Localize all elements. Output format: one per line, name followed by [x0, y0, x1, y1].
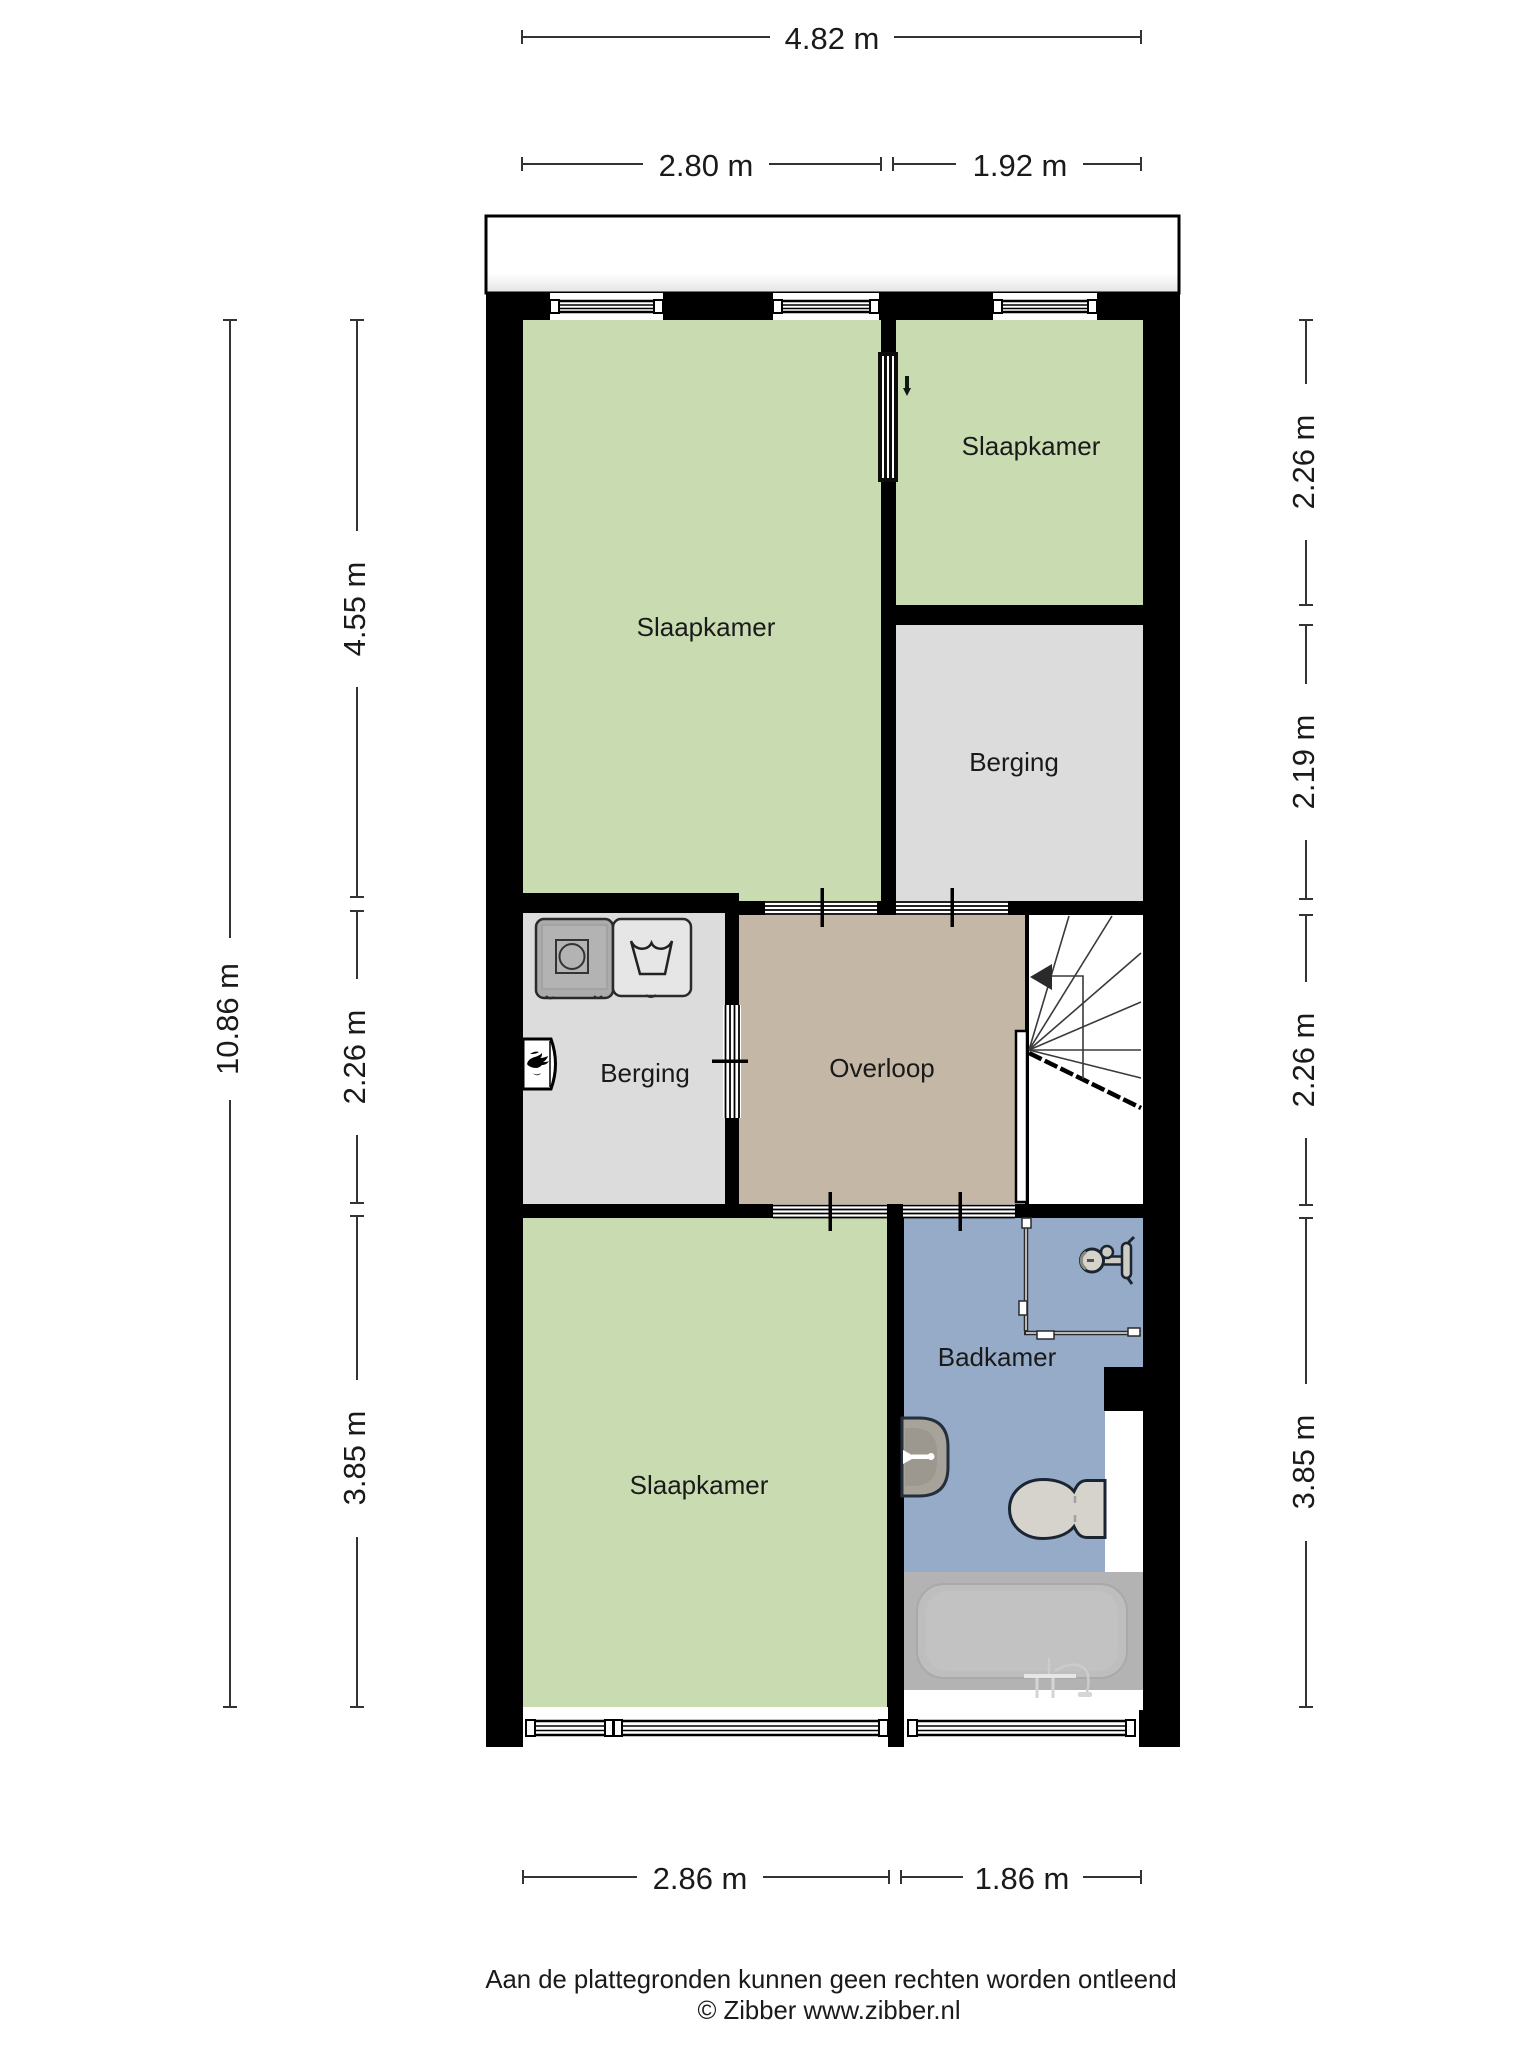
svg-text:Slaapkamer: Slaapkamer [637, 612, 776, 642]
svg-text:3.85 m: 3.85 m [1286, 1415, 1321, 1510]
svg-text:2.26 m: 2.26 m [337, 1010, 372, 1105]
svg-text:2.26 m: 2.26 m [1286, 1013, 1321, 1108]
svg-text:2.26 m: 2.26 m [1286, 415, 1321, 510]
svg-text:10.86 m: 10.86 m [210, 963, 245, 1075]
svg-text:Slaapkamer: Slaapkamer [630, 1470, 769, 1500]
svg-text:Slaapkamer: Slaapkamer [962, 431, 1101, 461]
svg-text:Overloop: Overloop [829, 1053, 935, 1083]
svg-text:2.19 m: 2.19 m [1286, 715, 1321, 810]
svg-text:3.85 m: 3.85 m [337, 1411, 372, 1506]
svg-text:2.80 m: 2.80 m [659, 148, 754, 183]
svg-text:1.86 m: 1.86 m [975, 1861, 1070, 1896]
svg-text:1.92 m: 1.92 m [973, 148, 1068, 183]
svg-text:© Zibber www.zibber.nl: © Zibber www.zibber.nl [697, 1997, 960, 2025]
svg-text:4.82 m: 4.82 m [785, 21, 880, 56]
svg-text:Badkamer: Badkamer [938, 1342, 1057, 1372]
svg-text:4.55 m: 4.55 m [337, 562, 372, 657]
svg-text:Aan de plattegronden kunnen ge: Aan de plattegronden kunnen geen rechten… [485, 1966, 1176, 1994]
svg-text:Berging: Berging [969, 747, 1059, 777]
svg-text:Berging: Berging [600, 1058, 690, 1088]
svg-text:2.86 m: 2.86 m [653, 1861, 748, 1896]
